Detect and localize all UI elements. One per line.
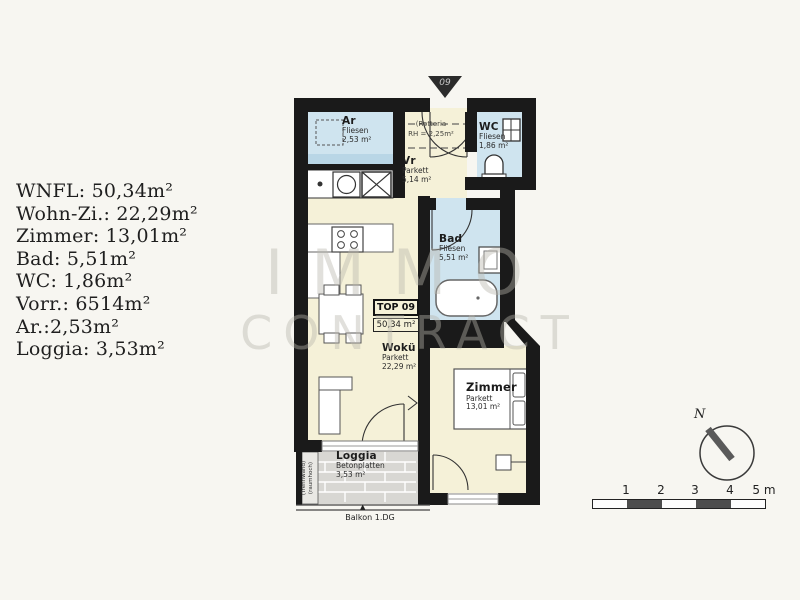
floorplan-page: WNFL: 50,34m² Wohn-Zi.: 22,29m² Zimmer: … <box>0 0 800 600</box>
scale-tick-2: 2 <box>657 483 665 497</box>
partition-note: (Trennwand) (raumhoch) <box>301 452 316 504</box>
scale-tick-1: 1 <box>622 483 630 497</box>
room-label-loggia: Loggia Betonplatten 3,53 m² <box>336 450 385 480</box>
area-line-loggia: Loggia: 3,53m² <box>16 338 198 361</box>
north-label: N <box>694 407 705 422</box>
scale-bar <box>592 499 766 509</box>
entrance-beam-note: (Rotteria RH = 2,25m² <box>395 119 467 139</box>
area-line-wnfl: WNFL: 50,34m² <box>16 180 198 203</box>
area-line-bad: Bad: 5,51m² <box>16 248 198 271</box>
room-label-wc: WC Fliesen 1,86 m² <box>479 121 508 151</box>
entrance-marker-number: 09 <box>436 78 454 88</box>
area-line-vorr: Vorr.: 6514m² <box>16 293 198 316</box>
area-line-ar: Ar.:2,53m² <box>16 316 198 339</box>
room-label-woku: Wokü Parkett 22,29 m² <box>382 342 416 372</box>
area-list: WNFL: 50,34m² Wohn-Zi.: 22,29m² Zimmer: … <box>16 180 198 361</box>
unit-total-area: 50,34 m² <box>373 318 419 332</box>
room-label-bad: Bad Fliesen 5,51 m² <box>439 233 468 263</box>
balcony-arrow-icon: ▲ <box>360 503 365 511</box>
room-label-vr: Vr Parkett 5,14 m² <box>402 155 431 185</box>
unit-number-box: TOP 09 50,34 m² <box>373 299 419 332</box>
balcony-label: Balkon 1.DG <box>330 513 410 522</box>
area-line-zimmer: Zimmer: 13,01m² <box>16 225 198 248</box>
area-line-wohnzi: Wohn-Zi.: 22,29m² <box>16 203 198 226</box>
room-label-zimmer: Zimmer Parkett 13,01 m² <box>466 381 517 412</box>
room-label-ar: Ar Fliesen 2,53 m² <box>342 115 371 145</box>
unit-number: TOP 09 <box>373 299 419 316</box>
area-line-wc: WC: 1,86m² <box>16 270 198 293</box>
